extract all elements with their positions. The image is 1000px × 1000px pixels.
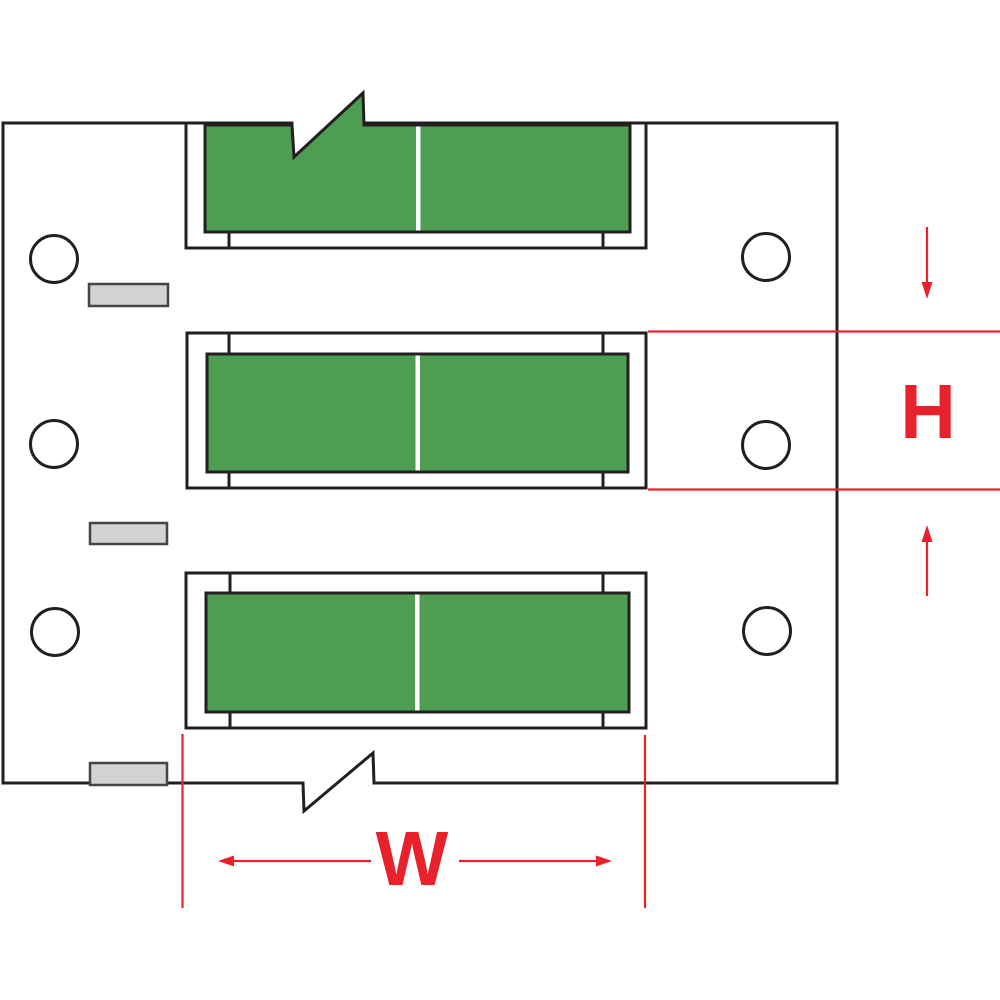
registration-mark [90, 523, 167, 544]
feed-hole [32, 609, 79, 656]
sleeve-row-middle [187, 333, 646, 488]
arrow-left-icon [218, 856, 371, 867]
feed-hole [743, 422, 790, 469]
arrow-right-icon [459, 856, 612, 867]
wire-sleeve-diagram: H W [0, 0, 1000, 1000]
height-dimension-label: H [900, 369, 956, 455]
registration-mark [90, 763, 167, 785]
arrow-down-icon [922, 227, 933, 299]
sleeve-row-bottom [186, 573, 646, 728]
feed-hole [31, 421, 78, 468]
feed-hole [744, 608, 791, 655]
feed-hole [743, 234, 790, 281]
width-dimension-label: W [376, 816, 449, 902]
sleeve-divider-line [416, 127, 421, 231]
arrow-up-icon [922, 525, 933, 596]
registration-mark [89, 284, 168, 306]
sleeve-divider-line [415, 595, 420, 711]
feed-hole [31, 236, 78, 283]
sleeve-divider-line [416, 356, 421, 471]
sleeve-row-top [186, 93, 646, 248]
wire-sleeve-diagram-svg: H W [0, 0, 1000, 1000]
